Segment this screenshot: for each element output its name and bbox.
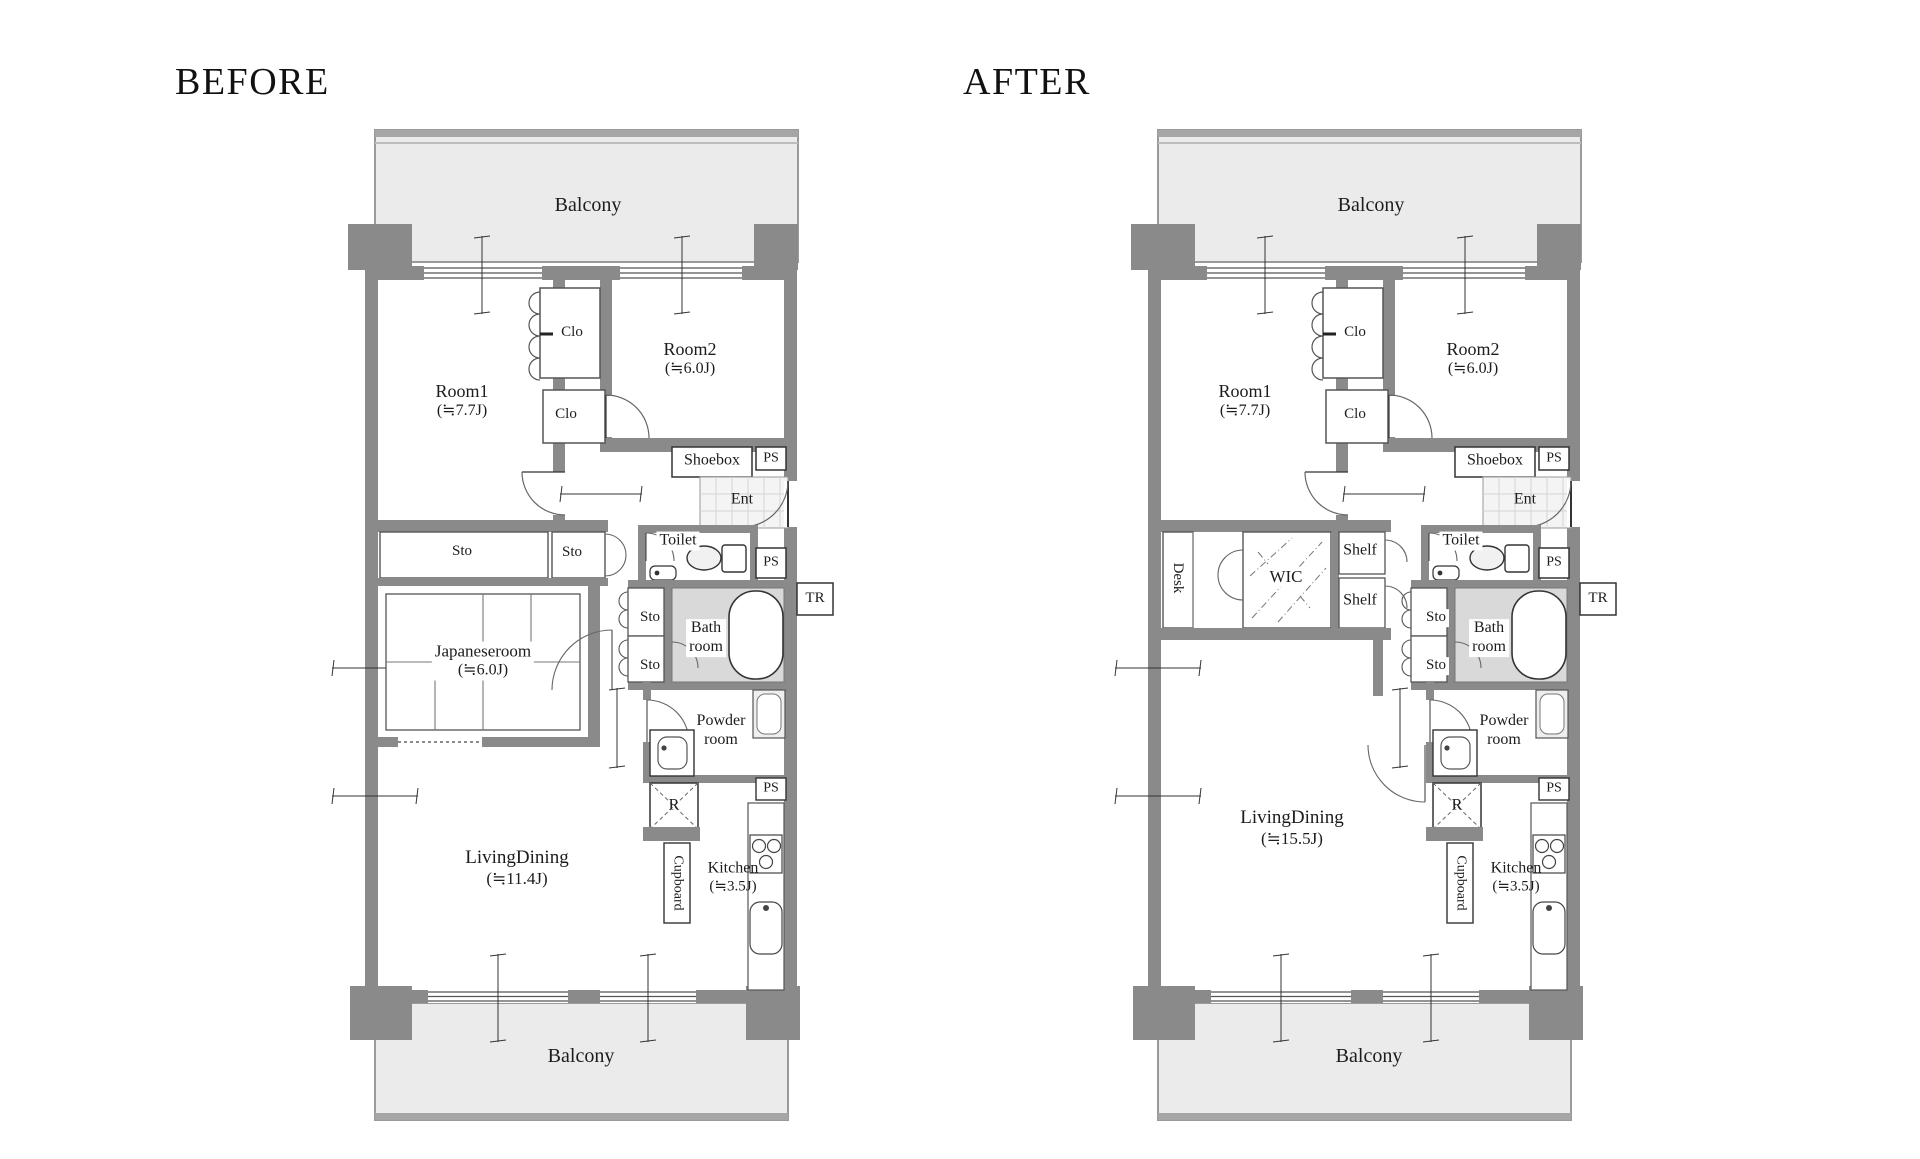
after-desk-label: Desk — [1168, 563, 1186, 594]
before-toilet-label: Toilet — [656, 532, 699, 551]
before-refrigerator-label: R — [669, 797, 680, 816]
after-sto-bath-lower-label: Sto — [1423, 657, 1449, 675]
before-shoebox-label: Shoebox — [684, 452, 740, 471]
after-balcony-top-label: Balcony — [1338, 194, 1405, 218]
before-ps-entrance-label: PS — [763, 451, 779, 468]
before-ent-label: Ent — [731, 491, 753, 510]
after-powder-label: Powderroom — [1480, 712, 1529, 750]
before-clo-lower-label: Clo — [555, 406, 577, 424]
before-balcony-top-label: Balcony — [555, 194, 622, 218]
after-toilet-label: Toilet — [1439, 532, 1482, 551]
before-balcony-bottom-label: Balcony — [548, 1045, 615, 1069]
after-shoebox-label: Shoebox — [1467, 452, 1523, 471]
after-tr-label: TR — [1588, 590, 1607, 608]
before-livingdining-label: LivingDining(≒11.4J) — [465, 847, 568, 889]
before-ps-kitchen-label: PS — [763, 781, 779, 798]
before-powder-label: Powderroom — [697, 712, 746, 750]
before-room1-label: Room1(≒7.7J) — [435, 381, 488, 421]
after-ps-middle-label: PS — [1546, 555, 1562, 572]
before-bathroom-label: Bathroom — [686, 619, 726, 657]
before-cupboard-label: Cupboard — [669, 855, 686, 910]
before-sto-hall-label: Sto — [562, 544, 582, 562]
after-ps-entrance-label: PS — [1546, 451, 1562, 468]
after-shelf-upper-label: Shelf — [1343, 542, 1377, 561]
after-sto-bath-upper-label: Sto — [1423, 609, 1449, 627]
after-title: AFTER — [963, 60, 1091, 104]
before-room2-label: Room2(≒6.0J) — [663, 339, 716, 379]
before-tr-label: TR — [805, 590, 824, 608]
after-livingdining-label: LivingDining(≒15.5J) — [1240, 807, 1343, 849]
after-room1-label: Room1(≒7.7J) — [1218, 381, 1271, 421]
storage-row — [380, 532, 626, 578]
after-wic-label: WIC — [1266, 567, 1305, 587]
after-row-south-wall — [1161, 628, 1391, 640]
before-sto-wide-label: Sto — [452, 543, 472, 561]
before-kitchen-label: Kitchen(≒3.5J) — [708, 860, 759, 897]
after-ent-label: Ent — [1514, 491, 1536, 510]
before-title: BEFORE — [175, 60, 330, 104]
after-refrigerator-label: R — [1452, 797, 1463, 816]
floorplan-comparison: BEFORE Balcony Room1(≒7.7J) Clo Room2(≒6… — [0, 0, 1920, 1159]
before-sto-bath-upper-label: Sto — [637, 609, 663, 627]
before-ps-middle-label: PS — [763, 555, 779, 572]
after-clo-upper-label: Clo — [1344, 324, 1366, 342]
after-room2-label: Room2(≒6.0J) — [1446, 339, 1499, 379]
before-sto-bath-lower-label: Sto — [637, 657, 663, 675]
after-cupboard-label: Cupboard — [1452, 855, 1469, 910]
after-bathroom-label: Bathroom — [1469, 619, 1509, 657]
before-clo-upper-label: Clo — [561, 324, 583, 342]
after-balcony-bottom-label: Balcony — [1336, 1045, 1403, 1069]
after-clo-lower-label: Clo — [1344, 406, 1366, 424]
after-kitchen-label: Kitchen(≒3.5J) — [1491, 860, 1542, 897]
after-ps-kitchen-label: PS — [1546, 781, 1562, 798]
floorplan-graphics — [0, 0, 1920, 1159]
after-shelf-lower-label: Shelf — [1343, 592, 1377, 611]
before-japaneseroom-label: Japaneseroom(≒6.0J) — [432, 642, 534, 681]
